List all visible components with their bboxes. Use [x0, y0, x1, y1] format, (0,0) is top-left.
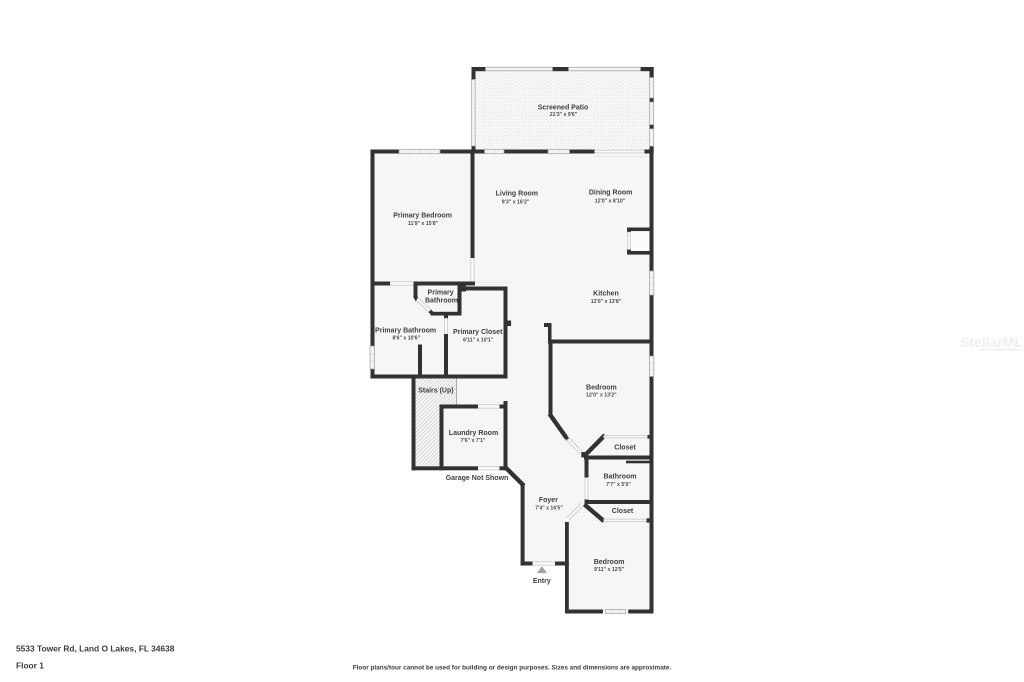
svg-text:21'3" x 9'6": 21'3" x 9'6"	[550, 112, 578, 118]
svg-text:Bedroom: Bedroom	[594, 559, 625, 566]
svg-text:9'11" x 12'5": 9'11" x 12'5"	[594, 567, 625, 573]
svg-text:7'7" x 5'0": 7'7" x 5'0"	[606, 482, 631, 488]
svg-text:7'4" x 16'5": 7'4" x 16'5"	[535, 506, 563, 512]
svg-text:5533 Tower Rd, Land O Lakes, F: 5533 Tower Rd, Land O Lakes, FL 34638	[16, 643, 175, 653]
svg-text:StellarMLS: StellarMLS	[960, 334, 1024, 350]
svg-text:8'6" x 10'6": 8'6" x 10'6"	[393, 335, 421, 341]
svg-text:12'0" x 13'8": 12'0" x 13'8"	[591, 299, 622, 305]
svg-text:Bedroom: Bedroom	[586, 385, 617, 392]
svg-text:Primary Bathroom: Primary Bathroom	[375, 328, 436, 335]
svg-text:Entry: Entry	[533, 578, 551, 585]
svg-text:Floor plans/tour cannot be use: Floor plans/tour cannot be used for buil…	[353, 665, 672, 672]
svg-text:Floor 1: Floor 1	[16, 660, 44, 670]
svg-text:9'3" x 16'2": 9'3" x 16'2"	[502, 199, 530, 205]
svg-text:Bathroom: Bathroom	[603, 473, 636, 480]
svg-text:6'11" x 10'1": 6'11" x 10'1"	[463, 338, 494, 344]
svg-text:Primary: Primary	[428, 289, 454, 296]
svg-text:Foyer: Foyer	[539, 497, 558, 504]
svg-text:Closet: Closet	[612, 508, 634, 515]
svg-text:Screened Patio: Screened Patio	[538, 104, 589, 111]
svg-text:12'0" x 8'10": 12'0" x 8'10"	[595, 198, 626, 204]
svg-text:Laundry Room: Laundry Room	[449, 430, 498, 437]
svg-text:12'0" x 13'2": 12'0" x 13'2"	[586, 393, 617, 399]
svg-text:Bathroom: Bathroom	[425, 298, 458, 305]
svg-text:Primary Closet: Primary Closet	[453, 329, 503, 336]
svg-text:Kitchen: Kitchen	[593, 290, 619, 297]
svg-text:7'6" x 7'1": 7'6" x 7'1"	[461, 438, 486, 444]
svg-text:Dining Room: Dining Room	[589, 190, 633, 197]
svg-text:Stairs (Up): Stairs (Up)	[418, 388, 453, 395]
svg-text:Primary Bedroom: Primary Bedroom	[393, 213, 452, 220]
svg-text:Garage Not Shown: Garage Not Shown	[446, 475, 509, 482]
svg-text:Closet: Closet	[614, 444, 636, 451]
svg-text:Living Room: Living Room	[496, 191, 538, 198]
svg-text:11'9" x 15'8": 11'9" x 15'8"	[408, 221, 439, 227]
